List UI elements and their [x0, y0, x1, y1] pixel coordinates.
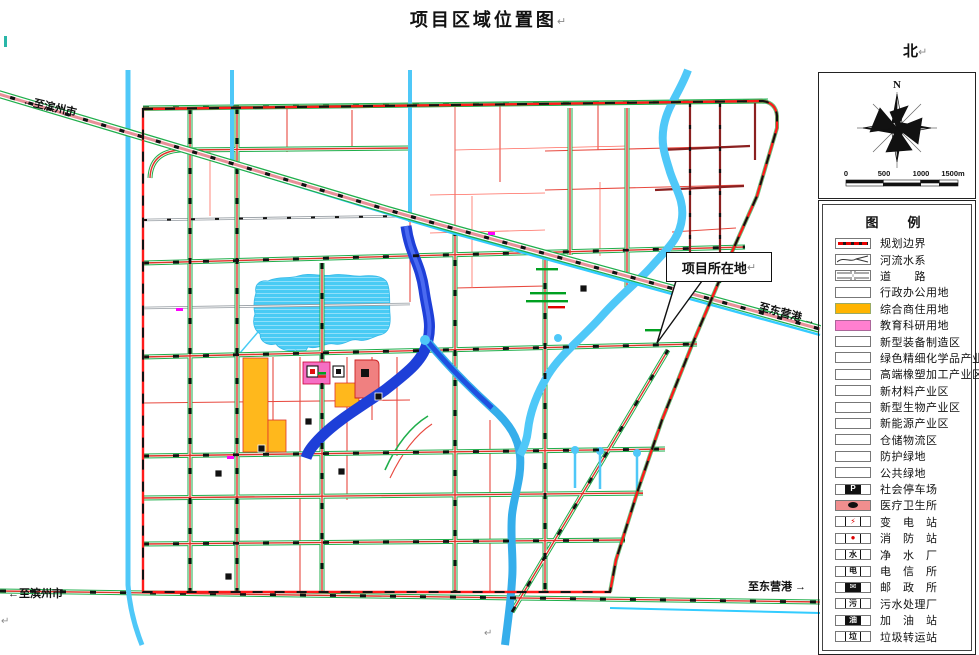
post-office-icon: ✉	[835, 582, 871, 593]
legend-item-road: 道 路	[835, 268, 969, 284]
legend-item-protective-green: 防护绿地	[835, 448, 969, 464]
legend-item-garbage-transfer: 垃 垃圾转运站	[835, 628, 969, 644]
magenta-mark	[176, 308, 183, 311]
legend-item-medical-clinic: 医疗卫生所	[835, 497, 969, 513]
legend-item-river-system: 河流水系	[835, 251, 969, 267]
legend-item-new-energy: 新能源产业区	[835, 415, 969, 431]
pilcrow-mark: ↵	[557, 16, 569, 28]
magenta-mark	[488, 232, 495, 235]
project-location-callout: 项目所在地↵	[666, 252, 772, 282]
north-word: 北↵	[903, 40, 927, 61]
plain-swatch	[835, 352, 871, 363]
plain-swatch	[835, 402, 871, 413]
legend-item-post-office: ✉ 邮 政 所	[835, 579, 969, 595]
legend-panel: 图 例 规划边界 河流水系 道 路 行政办公用地	[818, 200, 976, 655]
road-label-to-binzhou-bottom: ←至滨州市	[8, 586, 63, 600]
callout-text: 项目所在地	[682, 258, 747, 277]
legend-item-fire-station: ● 消 防 站	[835, 530, 969, 546]
legend-item-public-green: 公共绿地	[835, 464, 969, 480]
page-title-text: 项目区域位置图	[410, 10, 557, 30]
page-title: 项目区域位置图↵	[0, 6, 979, 32]
boundary-line-swatch	[835, 238, 871, 249]
legend-item-substation: ⚡ 变 电 站	[835, 514, 969, 530]
stray-pilcrow: ↵	[484, 628, 492, 639]
pilcrow-mark: ↵	[918, 47, 927, 59]
legend-item-green-chemicals: 绿色精细化学品产业区	[835, 350, 969, 366]
plain-swatch	[835, 369, 871, 380]
legend-item-warehouse-logistics: 仓储物流区	[835, 432, 969, 448]
legend-item-planning-boundary: 规划边界	[835, 235, 969, 251]
garbage-transfer-icon: 垃	[835, 631, 871, 642]
teal-mark	[4, 36, 7, 47]
tiny-green-mark	[318, 372, 326, 375]
legend-item-rubber-plastic: 高端橡塑加工产业区	[835, 366, 969, 382]
legend-item-education-research: 教育科研用地	[835, 317, 969, 333]
parcel-commercial-residential	[268, 420, 286, 452]
magenta-mark	[227, 456, 234, 459]
tiny-red-text-mark	[548, 306, 565, 308]
legend-item-commercial-residential: 综合商住用地	[835, 301, 969, 317]
gas-station-icon: 油	[835, 615, 871, 626]
medical-icon	[835, 500, 871, 511]
parking-icon: P	[835, 484, 871, 495]
tiny-red-mark	[318, 375, 326, 378]
sewage-plant-icon: 污	[835, 598, 871, 609]
legend-item-public-parking: P 社会停车场	[835, 481, 969, 497]
legend-item-gas-station: 油 加 油 站	[835, 612, 969, 628]
fire-station-icon: ●	[835, 533, 871, 544]
plain-swatch	[835, 434, 871, 445]
north-arrow-panel	[818, 72, 976, 199]
plain-swatch	[835, 287, 871, 298]
plain-swatch	[835, 451, 871, 462]
legend-item-water-plant: 水 净 水 厂	[835, 546, 969, 562]
plain-swatch	[835, 418, 871, 429]
orange-swatch	[835, 303, 871, 314]
lake	[240, 274, 390, 354]
pilcrow-mark: ↵	[747, 261, 756, 274]
legend-item-equipment-manufacturing: 新型装备制造区	[835, 333, 969, 349]
parcel-commercial-residential	[243, 358, 268, 452]
river-symbol-swatch	[835, 254, 871, 265]
legend-rows: 规划边界 河流水系 道 路 行政办公用地 综合商住用地	[835, 235, 969, 645]
pink-swatch	[835, 320, 871, 331]
legend-item-new-materials: 新材料产业区	[835, 383, 969, 399]
road-label-to-binzhou-top: ←至滨州市	[21, 93, 78, 119]
legend-inner-frame: 图 例 规划边界 河流水系 道 路 行政办公用地	[822, 204, 972, 651]
water-plant-icon: 水	[835, 549, 871, 560]
legend-item-telecom-office: 电 电 信 所	[835, 563, 969, 579]
plain-swatch	[835, 385, 871, 396]
plain-swatch	[835, 336, 871, 347]
road-symbol-swatch	[835, 270, 871, 281]
legend-item-admin-office: 行政办公用地	[835, 284, 969, 300]
plain-swatch	[835, 467, 871, 478]
document-page: { "title": {"text": "项目区域位置图", "pilcrow"…	[0, 0, 979, 647]
legend-item-bio-industry: 新型生物产业区	[835, 399, 969, 415]
stray-pilcrow: ↵	[1, 616, 9, 627]
telecom-icon: 电	[835, 566, 871, 577]
road-label-to-dongying-bottom: 至东营港 →	[748, 579, 806, 593]
legend-header: 图 例	[823, 212, 971, 231]
legend-item-sewage-plant: 污 污水处理厂	[835, 596, 969, 612]
substation-icon: ⚡	[835, 516, 871, 527]
